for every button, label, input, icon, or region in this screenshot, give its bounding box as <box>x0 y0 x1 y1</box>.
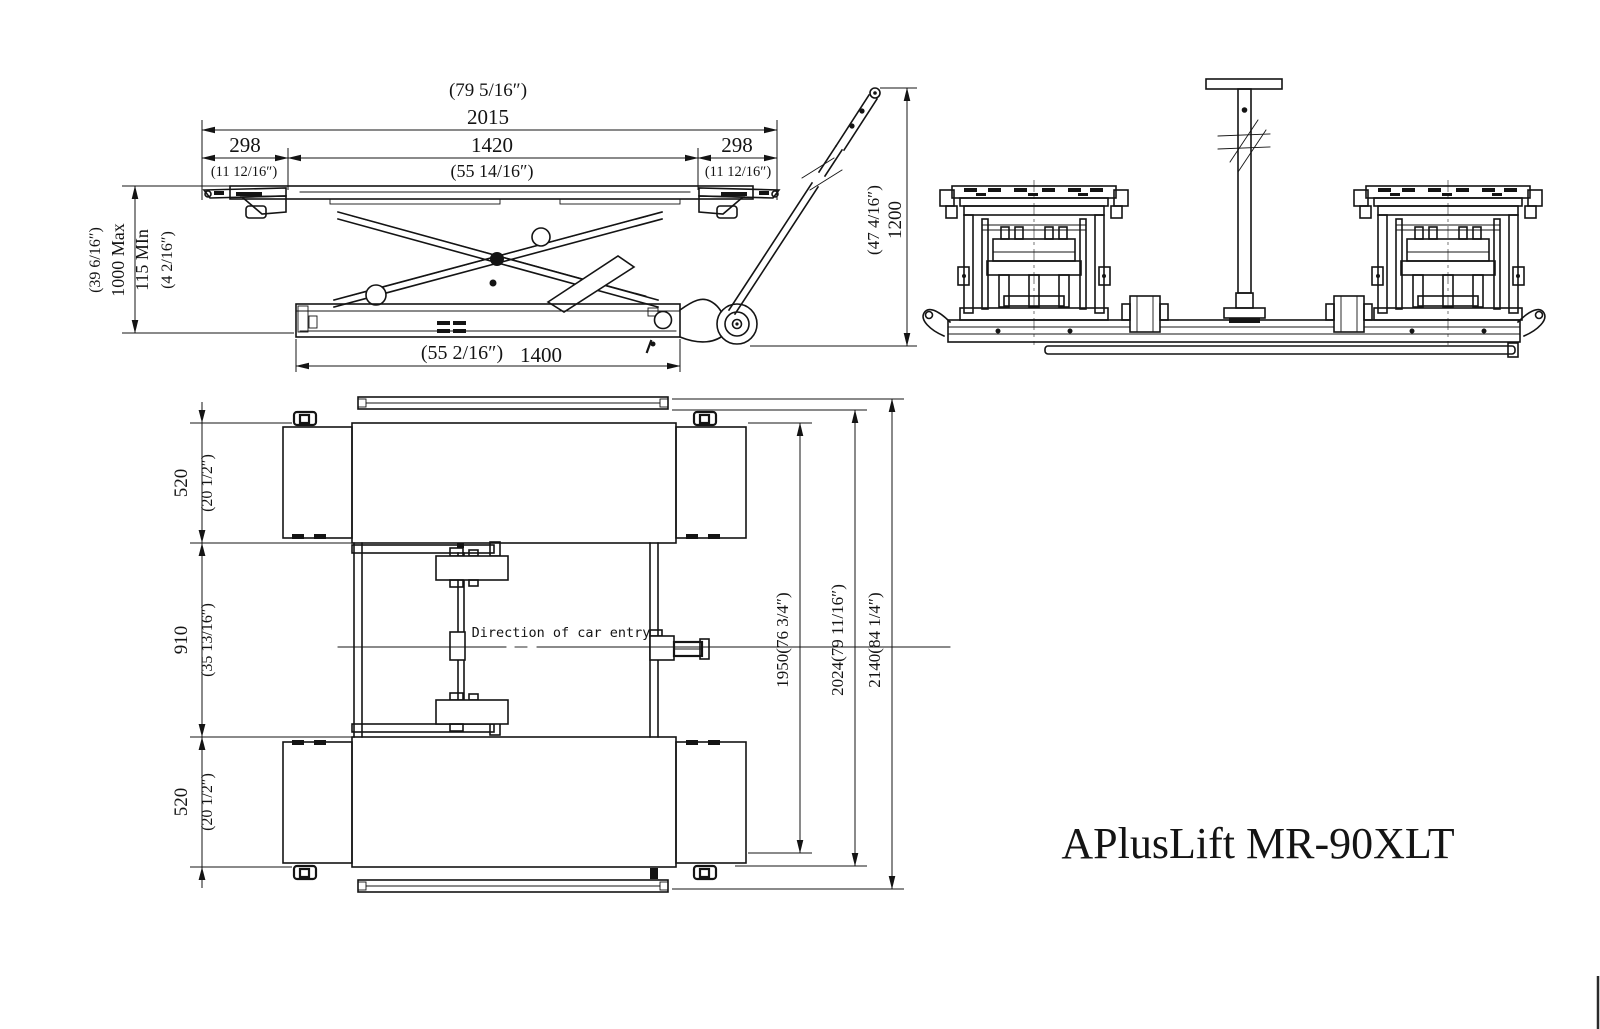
dim-left-end-in: (11 12/16″) <box>211 164 277 180</box>
direction-of-entry-label: Direction of car entry <box>472 625 651 641</box>
dim-top-ramp-mm: 520 <box>171 469 192 498</box>
dim-handle-mm: 1200 <box>885 201 906 239</box>
side-view: (79 5/16″) 2015 298 1420 298 (11 12/16″)… <box>87 80 917 372</box>
dim-base-in: (55 2/16″) <box>421 342 503 364</box>
dim-handle-in: (47 4/16″) <box>864 185 883 255</box>
wheel-and-handle <box>680 88 880 344</box>
dim-overall-mm: 2015 <box>467 105 509 129</box>
dim-length-mid: 2024(79 11/16″) <box>828 584 847 696</box>
plan-platforms <box>283 397 746 892</box>
dim-bottom-ramp-mm: 520 <box>171 788 192 817</box>
rail-slider <box>450 632 465 660</box>
dim-top-ramp-in: (20 1/2″) <box>199 454 216 512</box>
dim-plan-lengths: 1950(76 3/4″) 2024(79 11/16″) 2140(84 1/… <box>672 399 904 889</box>
scissor-arms <box>334 212 662 312</box>
dim-raise-max: 1000 Max <box>108 223 128 297</box>
dim-raise-min: 115 MIn <box>132 229 152 291</box>
handle-post <box>1206 79 1282 323</box>
plan-middle-rails: Direction of car entry <box>338 542 950 737</box>
wheel-clamp-bottom <box>436 693 508 731</box>
dim-handle-height: (47 4/16″) 1200 <box>750 88 917 346</box>
bottom-left-ramp <box>283 742 352 863</box>
break-symbol <box>1230 120 1258 162</box>
top-left-ramp <box>283 427 352 538</box>
side-left-ramp <box>204 188 286 218</box>
left-hook <box>923 310 950 336</box>
dim-length-inner: 1950(76 3/4″) <box>773 592 792 687</box>
dim-center-mm: 910 <box>171 626 192 655</box>
center-pivot <box>490 252 504 266</box>
dim-left-end-mm: 298 <box>229 133 261 157</box>
dim-between-in: (55 14/16″) <box>451 161 534 182</box>
dim-raise-in: (39 6/16″) <box>87 227 104 293</box>
connecting-base <box>923 296 1545 357</box>
dim-base-mm: 1400 <box>520 343 562 367</box>
dim-center-in: (35 13/16″) <box>199 603 216 677</box>
side-connector <box>650 630 709 660</box>
drawing-canvas: (79 5/16″) 2015 298 1420 298 (11 12/16″)… <box>0 0 1600 1029</box>
dim-right-end-in: (11 12/16″) <box>705 164 771 180</box>
drawing-sheet: (79 5/16″) 2015 298 1420 298 (11 12/16″)… <box>0 0 1600 1029</box>
dim-between-mm: 1420 <box>471 133 513 157</box>
front-view <box>923 79 1545 357</box>
side-right-ramp <box>699 188 779 218</box>
dim-length-overall: 2140(84 1/4″) <box>865 592 884 687</box>
wheel-clamp-top <box>436 543 508 587</box>
dim-raise-min-in: (4 2/16″) <box>159 231 176 289</box>
dim-right-end-mm: 298 <box>721 133 753 157</box>
dim-bottom-ramp-in: (20 1/2″) <box>199 773 216 831</box>
dim-overall-length: (79 5/16″) 2015 298 1420 298 (11 12/16″)… <box>202 80 777 200</box>
plan-view: Direction of car entry 520 (20 1/2″) 910… <box>171 397 950 892</box>
model-label: APlusLift MR-90XLT <box>1061 819 1454 868</box>
dim-overall-in: (79 5/16″) <box>449 80 527 101</box>
dim-base-length: (55 2/16″) 1400 <box>296 339 680 372</box>
bottom-right-ramp <box>676 742 746 863</box>
dim-plan-widths: 520 (20 1/2″) 910 (35 13/16″) 520 (20 1/… <box>171 402 358 888</box>
top-right-ramp <box>676 427 746 538</box>
side-platform <box>230 186 753 204</box>
